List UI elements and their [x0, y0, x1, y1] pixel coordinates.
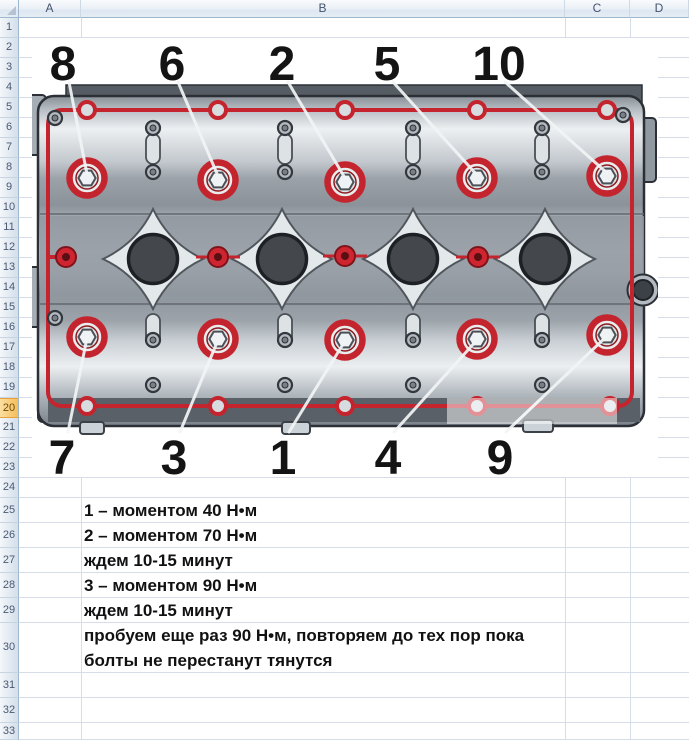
grid-row-32: [19, 698, 689, 723]
row-header-15[interactable]: 15: [0, 298, 19, 318]
row-header-13[interactable]: 13: [0, 258, 19, 278]
grid-row-1: [19, 18, 689, 38]
row-header-8[interactable]: 8: [0, 158, 19, 178]
excel-worksheet: ABCD 12345678910111213141516171819202122…: [0, 0, 689, 740]
select-all-triangle: [7, 6, 16, 15]
row-header-29[interactable]: 29: [0, 598, 19, 623]
row-header-3[interactable]: 3: [0, 58, 19, 78]
row-header-18[interactable]: 18: [0, 358, 19, 378]
note-cell-row-29[interactable]: ждем 10-15 минут: [84, 598, 539, 623]
note-cell-row-30[interactable]: пробуем еще раз 90 Н•м, повторяем до тех…: [84, 623, 539, 673]
bottom-sequence-numbers: 7 3 1 4 9: [49, 432, 514, 477]
highlight-patch: [447, 398, 617, 424]
row-header-7[interactable]: 7: [0, 138, 19, 158]
row-header-30[interactable]: 30: [0, 623, 19, 673]
bolt-sequence-number: 6: [159, 38, 186, 91]
row-header-19[interactable]: 19: [0, 378, 19, 398]
row-header-1[interactable]: 1: [0, 18, 19, 38]
row-header-28[interactable]: 28: [0, 573, 19, 598]
row-header-5[interactable]: 5: [0, 98, 19, 118]
row-header-23[interactable]: 23: [0, 458, 19, 478]
select-all-corner[interactable]: [0, 0, 19, 18]
row-header-10[interactable]: 10: [0, 198, 19, 218]
row-header-26[interactable]: 26: [0, 523, 19, 548]
cylinder-head-picture[interactable]: 8 6 2 5 10 7 3 1 4 9: [32, 38, 658, 477]
bolt-sequence-number: 5: [374, 38, 401, 91]
row-header-9[interactable]: 9: [0, 178, 19, 198]
note-cell-row-25[interactable]: 1 – моментом 40 Н•м: [84, 498, 539, 523]
row-header-24[interactable]: 24: [0, 478, 19, 498]
row-header-6[interactable]: 6: [0, 118, 19, 138]
column-header-D[interactable]: D: [630, 0, 689, 18]
row-header-12[interactable]: 12: [0, 238, 19, 258]
bolt-sequence-number: 7: [49, 432, 76, 477]
row-header-20[interactable]: 20: [0, 398, 19, 418]
row-header-14[interactable]: 14: [0, 278, 19, 298]
grid-row-24: [19, 478, 689, 498]
bolt-sequence-number: 9: [487, 432, 514, 477]
row-header-11[interactable]: 11: [0, 218, 19, 238]
note-cell-row-27[interactable]: ждем 10-15 минут: [84, 548, 539, 573]
row-header-2[interactable]: 2: [0, 38, 19, 58]
bolt-sequence-number: 3: [161, 432, 188, 477]
grid-row-31: [19, 673, 689, 698]
row-header-33[interactable]: 33: [0, 723, 19, 740]
column-header-A[interactable]: A: [19, 0, 81, 18]
row-header-22[interactable]: 22: [0, 438, 19, 458]
bolt-sequence-number: 10: [472, 38, 525, 91]
row-header-4[interactable]: 4: [0, 78, 19, 98]
row-header-16[interactable]: 16: [0, 318, 19, 338]
bolt-sequence-number: 2: [269, 38, 296, 91]
row-header-17[interactable]: 17: [0, 338, 19, 358]
column-header-B[interactable]: B: [81, 0, 565, 18]
column-header-C[interactable]: C: [565, 0, 630, 18]
row-header-27[interactable]: 27: [0, 548, 19, 573]
bolt-sequence-number: 1: [270, 432, 297, 477]
note-cell-row-28[interactable]: 3 – моментом 90 Н•м: [84, 573, 539, 598]
row-header-31[interactable]: 31: [0, 673, 19, 698]
cylinder-head-diagram: 8 6 2 5 10 7 3 1 4 9: [32, 38, 658, 477]
bolt-sequence-number: 4: [375, 432, 402, 477]
bolt-sequence-number: 8: [50, 38, 77, 91]
row-header-32[interactable]: 32: [0, 698, 19, 723]
note-cell-row-26[interactable]: 2 – моментом 70 Н•м: [84, 523, 539, 548]
grid-row-33: [19, 723, 689, 740]
row-header-21[interactable]: 21: [0, 418, 19, 438]
row-header-25[interactable]: 25: [0, 498, 19, 523]
top-sequence-numbers: 8 6 2 5 10: [50, 38, 526, 91]
